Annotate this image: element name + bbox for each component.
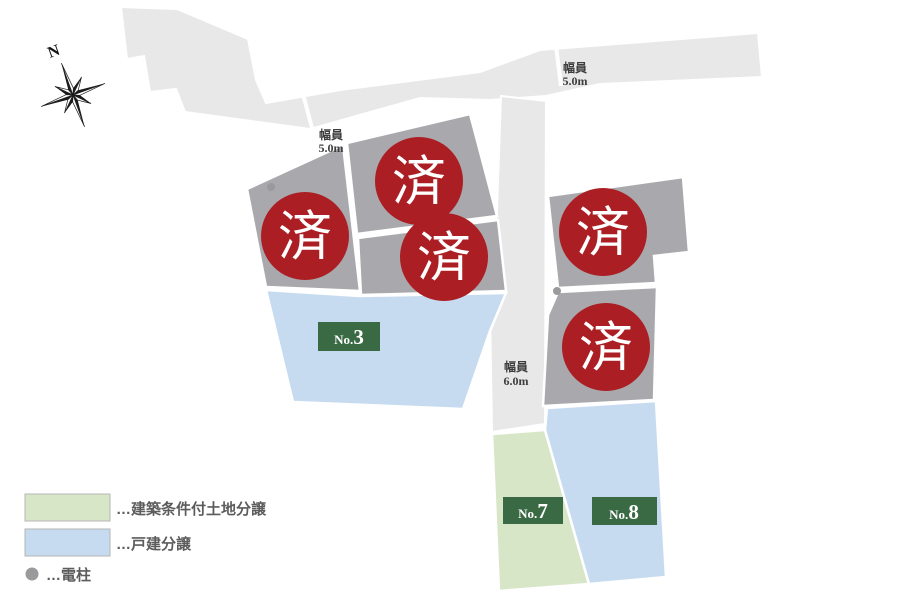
site-plan-map: 済 済 済 済 済 No.3	[0, 0, 900, 600]
sold-badge-text: 済	[579, 318, 633, 378]
lot-8-prefix: No.	[609, 507, 628, 522]
road-width-caption: 幅員	[319, 127, 343, 142]
legend-label-detached-house: …戸建分譲	[116, 535, 192, 553]
sold-badge-text: 済	[278, 207, 332, 267]
legend-pole-dot-icon	[26, 568, 39, 581]
legend-item-detached-house: …戸建分譲	[25, 529, 192, 556]
compass-star-icon	[41, 63, 105, 127]
road-width-value: 5.0m	[319, 141, 344, 155]
legend: …建築条件付土地分譲 …戸建分譲 …電柱	[25, 494, 267, 584]
utility-pole-dot	[553, 287, 561, 295]
compass-north-label: N	[46, 42, 63, 62]
road-width-value: 5.0m	[563, 74, 588, 88]
road-width-caption: 幅員	[563, 60, 587, 75]
legend-swatch-green	[25, 494, 110, 521]
legend-item-conditional-land: …建築条件付土地分譲	[25, 494, 267, 521]
lot-7-number: 7	[537, 499, 548, 523]
sold-badge-3: 済	[400, 213, 488, 301]
sold-badge-text: 済	[392, 152, 446, 212]
utility-pole-dot	[267, 183, 275, 191]
lot-8-number: 8	[628, 500, 639, 524]
sold-badge-5: 済	[562, 303, 650, 391]
north-east-road-shape	[121, 7, 762, 129]
lot-3-label: No.3	[318, 322, 380, 351]
lot-3-prefix: No.	[334, 332, 353, 347]
sold-badge-text: 済	[576, 203, 630, 263]
lot-3-number: 3	[353, 325, 364, 349]
legend-label-utility-pole: …電柱	[46, 566, 91, 584]
lot-3-area	[266, 290, 506, 409]
sold-badge-1: 済	[261, 192, 349, 280]
north-road-width-label: 幅員 5.0m	[319, 127, 344, 155]
east-road-width-label: 幅員 5.0m	[563, 60, 588, 88]
lot-7-prefix: No.	[518, 506, 537, 521]
legend-item-utility-pole: …電柱	[26, 566, 92, 584]
road-width-caption: 幅員	[504, 359, 528, 374]
sold-badge-text: 済	[417, 228, 471, 288]
road-width-value: 6.0m	[504, 374, 529, 388]
site-plan-page: 済 済 済 済 済 No.3	[0, 0, 900, 600]
center-road-width-label: 幅員 6.0m	[504, 359, 529, 388]
sold-badge-2: 済	[375, 137, 463, 225]
legend-label-conditional-land: …建築条件付土地分譲	[116, 500, 267, 518]
lot-8-label: No.8	[592, 497, 657, 525]
legend-swatch-blue	[25, 529, 110, 556]
lot-7-label: No.7	[503, 497, 563, 524]
compass-rose: N	[41, 42, 105, 127]
sold-badge-4: 済	[559, 188, 647, 276]
